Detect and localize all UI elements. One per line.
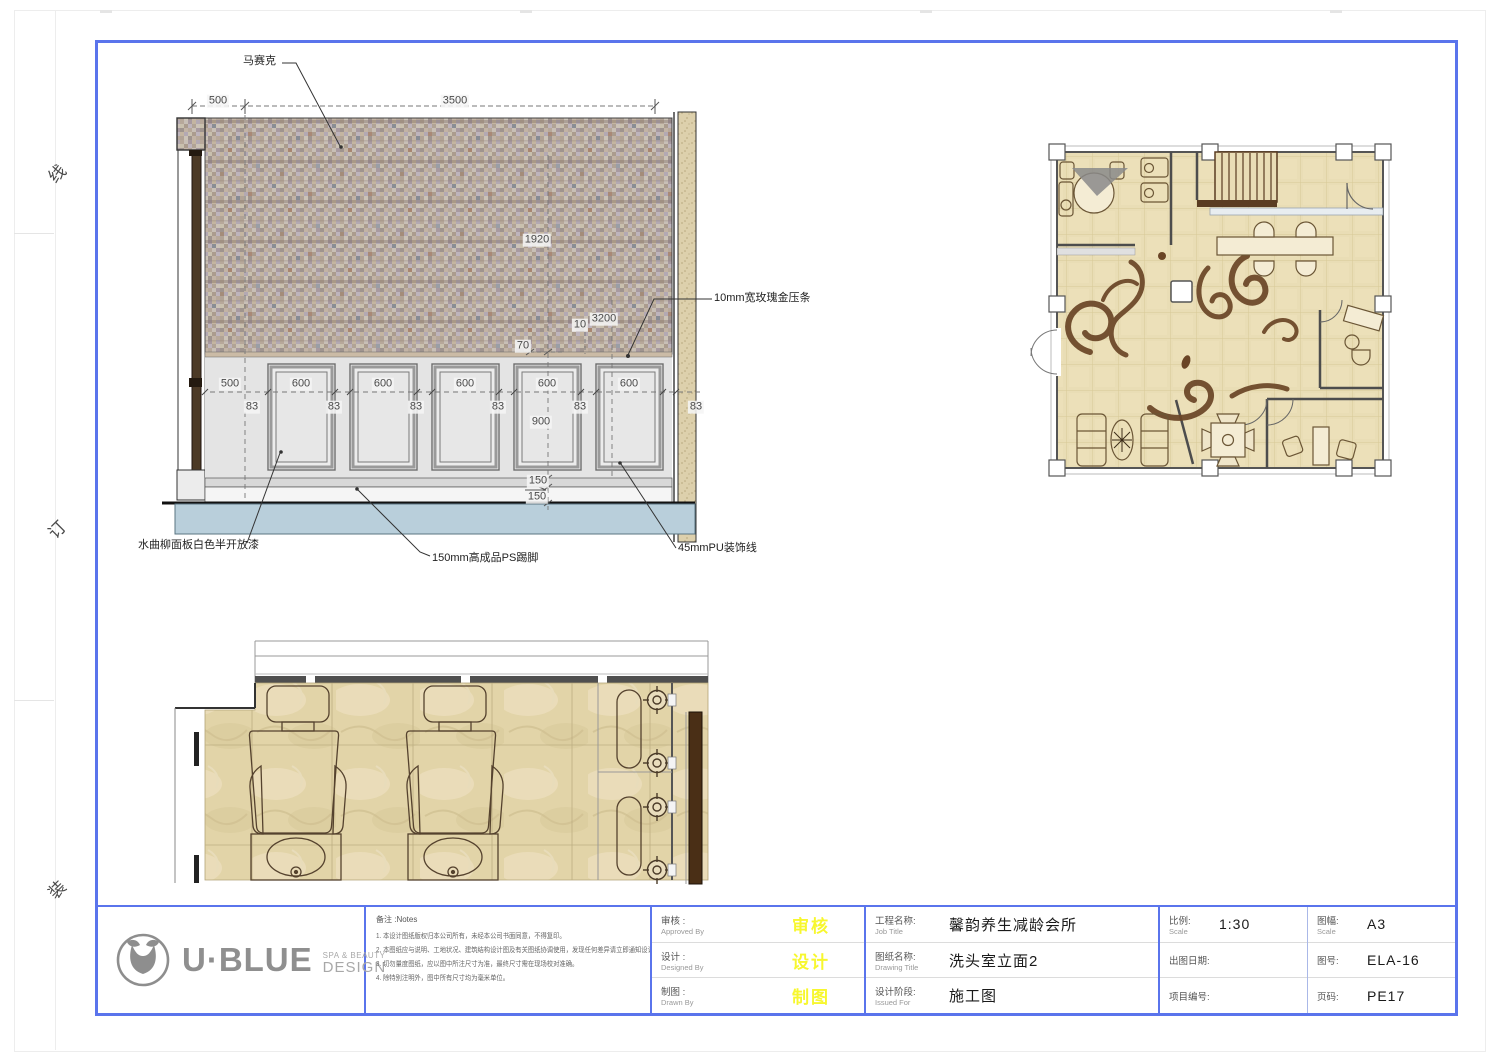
scale-value: 1:30	[1219, 916, 1250, 932]
callout-mosaic: 马赛克	[243, 55, 276, 67]
issued-for-row: 设计阶段:Issued For 施工图	[866, 978, 1158, 1013]
dim-500-top: 500	[207, 95, 229, 108]
dim-600: 600	[536, 378, 558, 391]
callout-skirting: 150mm高成品PS踢脚	[432, 552, 538, 564]
callout-rose-gold-strip: 10mm宽玫瑰金压条	[714, 292, 811, 304]
registration-tick	[1330, 10, 1342, 13]
registration-tick	[100, 10, 112, 13]
page-no-row: 页码: PE17	[1308, 978, 1455, 1013]
dim-83: 83	[572, 401, 588, 414]
approved-label: 审核 :	[661, 913, 723, 927]
drawn-label-en: Drawn By	[661, 998, 723, 1007]
ublue-logo-icon	[114, 931, 172, 989]
designed-label: 设计 :	[661, 949, 723, 963]
meta-left-cell: 比例:Scale 1:30 出图日期: 项目编号:	[1160, 907, 1308, 1013]
registration-tick	[14, 700, 54, 701]
dim-83: 83	[408, 401, 424, 414]
drawing-no-value: ELA-16	[1367, 952, 1420, 968]
logo-cell: U·BLUE SPA & BEAUTY DESIGN	[98, 907, 366, 1013]
job-title-row: 工程名称:Job Title 馨韵养生减龄会所	[866, 907, 1158, 943]
dim-83: 83	[326, 401, 342, 414]
issue-date-row: 出图日期:	[1160, 943, 1307, 979]
dim-83: 83	[244, 401, 260, 414]
signoff-cell: 审核 :Approved By 审核 设计 :Designed By 设计 制图…	[652, 907, 866, 1013]
drawn-stamp: 制图	[792, 983, 830, 1008]
meta-right-cell: 图幅:Scale A3 图号: ELA-16 页码: PE17	[1308, 907, 1455, 1013]
drawing-no-label: 图号:	[1317, 953, 1355, 967]
registration-tick	[520, 10, 532, 13]
elevation-drawing	[130, 48, 730, 568]
issued-for-label: 设计阶段:	[875, 984, 937, 998]
dim-70: 70	[515, 340, 531, 353]
designed-stamp: 设计	[792, 948, 830, 973]
designed-label-en: Designed By	[661, 963, 723, 972]
dim-150: 150	[526, 491, 548, 504]
signoff-row-designed: 设计 :Designed By 设计	[652, 943, 864, 979]
project-no-label: 项目编号:	[1169, 989, 1210, 1003]
project-no-row: 项目编号:	[1160, 978, 1307, 1013]
notes-cell: 备注 :Notes 1. 本设计图纸版权归本公司所有，未经本公司书面同意，不得复…	[366, 907, 652, 1013]
dim-600: 600	[372, 378, 394, 391]
dim-83: 83	[688, 401, 704, 414]
signoff-row-drawn: 制图 :Drawn By 制图	[652, 978, 864, 1013]
issue-date-label: 出图日期:	[1169, 953, 1210, 967]
approved-label-en: Approved By	[661, 927, 723, 936]
dim-3500-top: 3500	[441, 95, 469, 108]
dim-3200: 3200	[590, 313, 618, 326]
signoff-row-approved: 审核 :Approved By 审核	[652, 907, 864, 943]
dim-600: 600	[454, 378, 476, 391]
logo-wordmark: U·BLUE	[182, 941, 313, 979]
dim-83: 83	[490, 401, 506, 414]
page-no-value: PE17	[1367, 988, 1405, 1004]
scale-row: 比例:Scale 1:30	[1160, 907, 1307, 943]
key-plan-drawing	[1030, 128, 1400, 490]
drawing-sheet-page: { "sheet": { "binding_marks": ["线", "订",…	[0, 0, 1500, 1061]
note-line: 4. 除特别注明外，图中所有尺寸均为毫米单位。	[376, 972, 619, 986]
dim-150: 150	[527, 475, 549, 488]
job-title-label-en: Job Title	[875, 927, 937, 936]
drawing-title-label-en: Drawing Title	[875, 963, 937, 972]
job-title-label: 工程名称:	[875, 913, 937, 927]
notes-title: 备注 :Notes	[376, 914, 646, 925]
sheet-size-label: 图幅:	[1317, 913, 1355, 927]
callout-ash-panel: 水曲柳面板白色半开放漆	[138, 539, 259, 551]
dim-1920: 1920	[523, 234, 551, 247]
dim-500-panel: 500	[219, 378, 241, 391]
drawing-title-label: 图纸名称:	[875, 949, 937, 963]
approved-stamp: 审核	[792, 912, 830, 937]
drawing-no-row: 图号: ELA-16	[1308, 943, 1455, 979]
title-block: U·BLUE SPA & BEAUTY DESIGN 备注 :Notes 1. …	[98, 905, 1455, 1013]
project-cell: 工程名称:Job Title 馨韵养生减龄会所 图纸名称:Drawing Tit…	[866, 907, 1160, 1013]
plan-drawing	[165, 628, 720, 890]
dim-600: 600	[290, 378, 312, 391]
registration-tick	[920, 10, 932, 13]
drawn-label: 制图 :	[661, 984, 723, 998]
dim-10: 10	[572, 319, 588, 332]
note-line: 1. 本设计图纸版权归本公司所有，未经本公司书面同意，不得复印。	[376, 930, 619, 944]
scale-label: 比例:	[1169, 913, 1207, 927]
drawing-title-value: 洗头室立面2	[949, 950, 1038, 971]
sheet-size-label-en: Scale	[1317, 927, 1355, 936]
sheet-size-value: A3	[1367, 916, 1386, 932]
job-title-value: 馨韵养生减龄会所	[949, 914, 1077, 935]
issued-for-label-en: Issued For	[875, 998, 937, 1007]
sheet-size-row: 图幅:Scale A3	[1308, 907, 1455, 943]
callout-pu-moulding: 45mmPU装饰线	[678, 542, 757, 554]
note-line: 3. 切勿量度图纸，应以图中所注尺寸为准，最终尺寸需在现场校对准确。	[376, 958, 619, 972]
page-no-label: 页码:	[1317, 989, 1355, 1003]
dim-900: 900	[530, 416, 552, 429]
drawing-title-row: 图纸名称:Drawing Title 洗头室立面2	[866, 943, 1158, 979]
issued-for-value: 施工图	[949, 985, 997, 1006]
scale-label-en: Scale	[1169, 927, 1207, 936]
dim-600: 600	[618, 378, 640, 391]
note-line: 2. 本图纸应与说明、工地状况、建筑结构设计图及有关图纸协调使用，发现任何差异请…	[376, 944, 619, 958]
registration-tick	[14, 233, 54, 234]
